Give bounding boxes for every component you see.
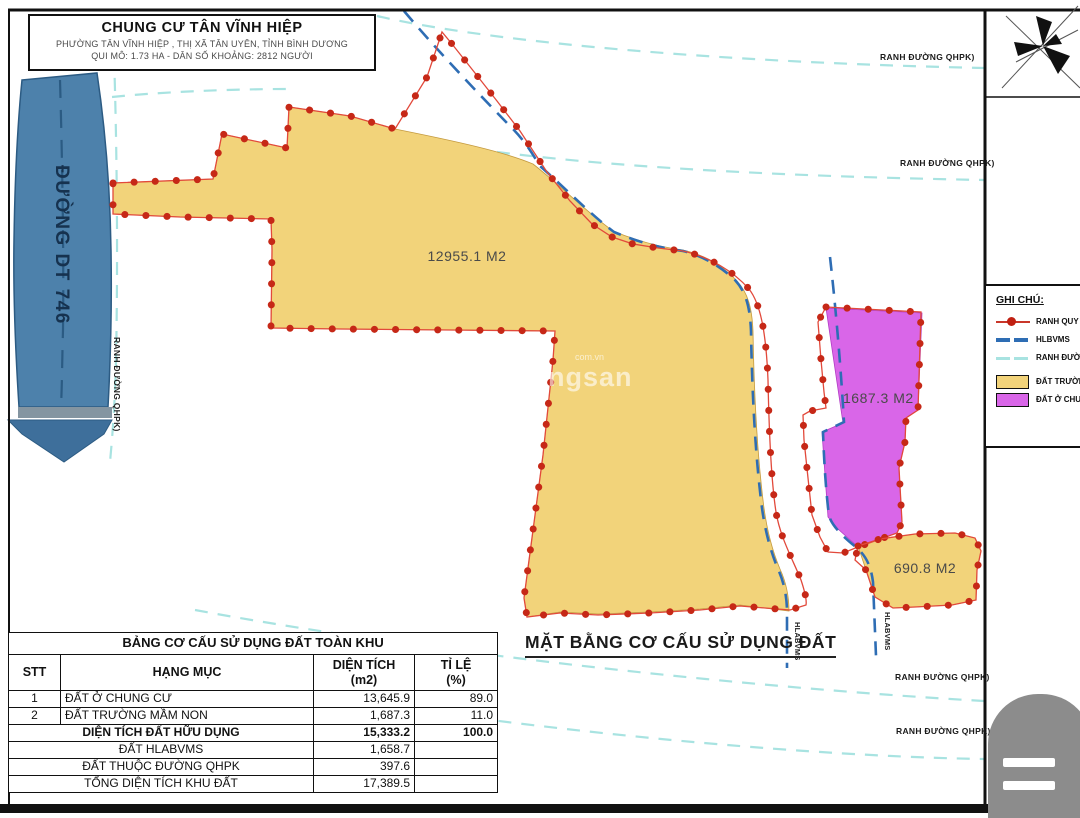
table-summary-row: TỔNG DIỆN TÍCH KHU ĐẤT 17,389.5 xyxy=(9,776,498,793)
legend-item-apartment-land: ĐẤT Ở CHUNG xyxy=(996,393,1080,406)
legend-heading: GHI CHÚ: xyxy=(996,294,1080,306)
table-row: 1 ĐẤT Ở CHUNG CƯ 13,645.9 89.0 xyxy=(9,691,498,708)
qhpk-label-bottom-1: RANH ĐƯỜNG QHPK) xyxy=(895,672,990,682)
watermark-big: ngsan xyxy=(548,362,633,393)
legend-item-label: RANH ĐƯỜNG xyxy=(1036,353,1080,362)
legend-item-boundary: RANH QUY HO xyxy=(996,315,1080,328)
road-name-label: ĐƯỜNG DT 746 xyxy=(50,165,72,325)
row-category: ĐẤT TRƯỜNG MẦM NON xyxy=(61,708,314,725)
legend-item-label: HLBVMS xyxy=(1036,335,1070,344)
area-label-main: 12955.1 M2 xyxy=(417,248,517,264)
table-summary-row: ĐẤT HLABVMS 1,658.7 xyxy=(9,742,498,759)
legend-item-school-land: ĐẤT TRƯỜNG xyxy=(996,375,1080,388)
yellow-fill-swatch xyxy=(996,375,1030,388)
qhpk-label-top-2: RANH ĐƯỜNG QHPK) xyxy=(900,158,995,168)
legend-box: GHI CHÚ: RANH QUY HO HLBVMS RANH ĐƯỜNG Đ… xyxy=(984,284,1080,448)
area-label-small: 690.8 M2 xyxy=(885,560,965,576)
hlbvms-dash-swatch-icon xyxy=(996,333,1030,346)
project-name: CHUNG CƯ TÂN VĨNH HIỆP xyxy=(30,20,374,36)
table-row: 2 ĐẤT TRƯỜNG MẦM NON 1,687.3 11.0 xyxy=(9,708,498,725)
legend-item-label: ĐẤT TRƯỜNG xyxy=(1036,377,1080,386)
area-label-purple: 1687.3 M2 xyxy=(843,390,913,406)
compass-icon xyxy=(1002,6,1080,88)
legend-item-label: ĐẤT Ở CHUNG xyxy=(1036,395,1080,404)
project-scale: QUI MÔ: 1.73 HA - DÂN SỐ KHOẢNG: 2812 NG… xyxy=(30,51,374,61)
project-title-block: CHUNG CƯ TÂN VĨNH HIỆP PHƯỜNG TÂN VĨNH H… xyxy=(28,14,376,71)
qhpk-dash-swatch-icon xyxy=(996,351,1030,364)
parcel-main-yellow xyxy=(113,107,789,617)
col-header-area: DIỆN TÍCH(m2) xyxy=(314,655,415,691)
scroll-handle[interactable] xyxy=(988,694,1080,818)
row-ratio: 89.0 xyxy=(415,691,498,708)
row-area: 13,645.9 xyxy=(314,691,415,708)
project-location: PHƯỜNG TÂN VĨNH HIỆP , THỊ XÃ TÂN UYÊN, … xyxy=(30,39,374,49)
hlabvms-label-right: HLABVMS xyxy=(883,612,892,650)
table-summary-row: DIỆN TÍCH ĐẤT HỮU DỤNG 15,333.2 100.0 xyxy=(9,725,498,742)
purple-fill-swatch xyxy=(996,393,1030,406)
qhpk-label-top-1: RANH ĐƯỜNG QHPK) xyxy=(880,52,975,62)
handle-bar-icon xyxy=(1003,781,1055,790)
legend-item-hlbvms: HLBVMS xyxy=(996,333,1080,346)
site-plan-page: CHUNG CƯ TÂN VĨNH HIỆP PHƯỜNG TÂN VĨNH H… xyxy=(0,0,1080,818)
road-crossing-bar xyxy=(18,407,112,418)
watermark-small: com.vn xyxy=(575,352,604,362)
land-use-table: BẢNG CƠ CẤU SỬ DỤNG ĐẤT TOÀN KHU STT HẠN… xyxy=(8,632,498,793)
table-title: BẢNG CƠ CẤU SỬ DỤNG ĐẤT TOÀN KHU xyxy=(9,633,498,655)
handle-bar-icon xyxy=(1003,758,1055,767)
legend-item-qhpk: RANH ĐƯỜNG xyxy=(996,351,1080,364)
qhpk-label-bottom-2: RANH ĐƯỜNG QHPK) xyxy=(896,726,991,736)
legend-item-label: RANH QUY HO xyxy=(1036,317,1080,326)
table-summary-row: ĐẤT THUỘC ĐƯỜNG QHPK 397.6 xyxy=(9,759,498,776)
row-area: 1,687.3 xyxy=(314,708,415,725)
row-ratio: 11.0 xyxy=(415,708,498,725)
col-header-ratio: TỈ LỆ(%) xyxy=(415,655,498,691)
frame-bottom-bar xyxy=(0,804,1080,813)
road-direction-arrow xyxy=(8,420,112,462)
red-boundary-swatch-icon xyxy=(996,315,1030,328)
col-header-stt: STT xyxy=(9,655,61,691)
row-category: ĐẤT Ở CHUNG CƯ xyxy=(61,691,314,708)
plan-title: MẶT BẰNG CƠ CẤU SỬ DỤNG ĐẤT xyxy=(525,632,836,658)
road-edge-qhpk-label: RANH ĐƯỜNG QHPK) xyxy=(112,337,122,432)
parcel-purple xyxy=(822,308,922,547)
qhpk-line-topleft xyxy=(112,89,291,97)
col-header-category: HẠNG MỤC xyxy=(61,655,314,691)
